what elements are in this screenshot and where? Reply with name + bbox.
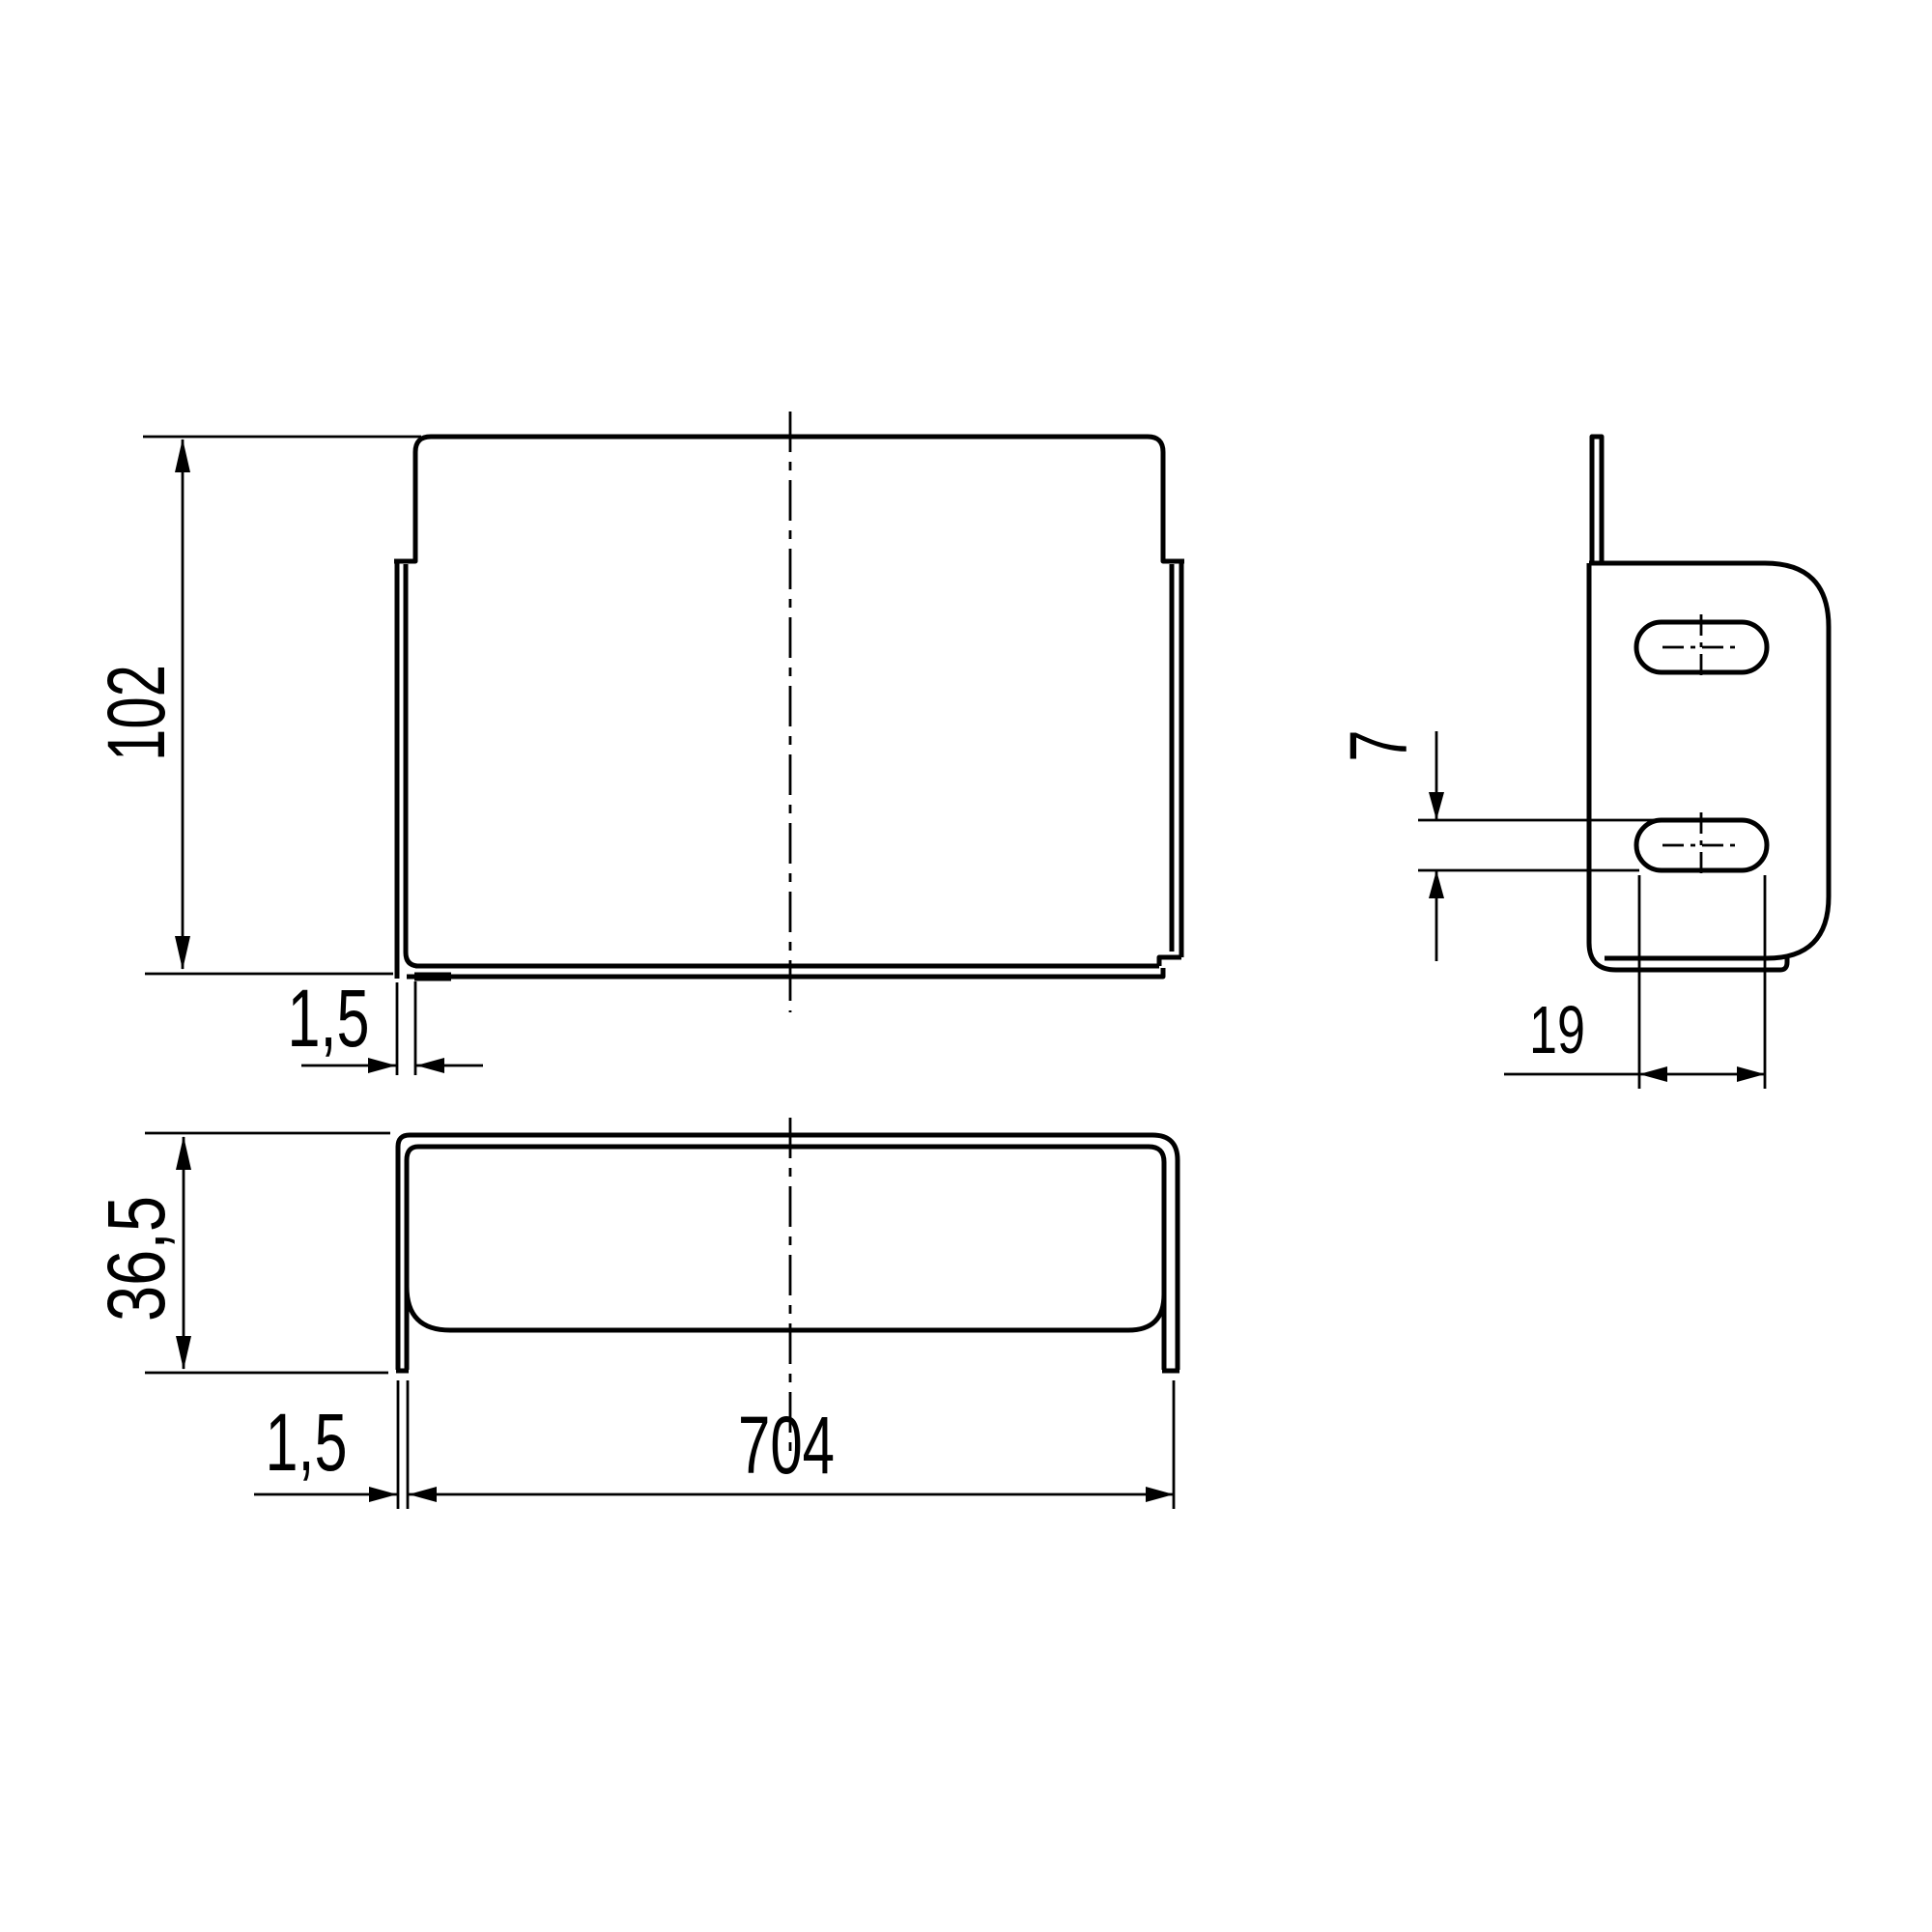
dim-label-front-height: 102 [91, 665, 182, 761]
front-left-inner-edge [406, 564, 417, 966]
dim-label-plan-thickness: 1,5 [266, 1397, 348, 1488]
arrowhead-right [369, 1487, 397, 1502]
dim-label-slot-length: 19 [1529, 992, 1585, 1067]
drawing-canvas: 102 1,5 36,5 1,5 70 [0, 0, 1932, 1932]
arrowhead-right [1737, 1066, 1765, 1082]
plan-front-edge [407, 1287, 1164, 1330]
plan-outer-contour [398, 1135, 1178, 1370]
arrowhead-up [176, 1136, 191, 1170]
dim-label-front-lip: 1,5 [288, 973, 370, 1064]
dim-label-slot-height: 7 [1333, 730, 1424, 762]
dim-plan-depth: 36,5 [91, 1133, 390, 1373]
arrowhead-down [1429, 792, 1444, 820]
dim-front-lip: 1,5 [288, 973, 484, 1075]
dim-label-plan-width: 704 [738, 1400, 835, 1491]
arrowhead-right [1146, 1487, 1174, 1502]
arrowhead-left [416, 1058, 444, 1073]
side-view [1589, 437, 1829, 970]
arrowhead-up [1429, 870, 1444, 898]
arrowhead-down [175, 936, 190, 970]
front-bottom-lower-line [407, 968, 1163, 977]
arrowhead-left [1639, 1066, 1667, 1082]
arrowhead-up [175, 439, 190, 472]
dim-plan-width-chain: 1,5 704 [254, 1380, 1174, 1509]
dim-label-plan-depth: 36,5 [91, 1196, 182, 1321]
technical-drawing: 102 1,5 36,5 1,5 70 [0, 0, 1932, 1932]
dim-slot-height: 7 [1333, 730, 1654, 962]
front-right-bottom-step [1159, 957, 1181, 966]
arrowhead-right [368, 1058, 396, 1073]
arrowhead-left [409, 1487, 437, 1502]
arrowhead-down [176, 1336, 191, 1370]
front-view [394, 412, 1184, 1012]
plan-inner-contour [407, 1147, 1164, 1370]
dim-slot-length: 19 [1504, 875, 1765, 1089]
dim-front-height: 102 [91, 437, 421, 974]
side-wall-edge [1592, 437, 1602, 563]
